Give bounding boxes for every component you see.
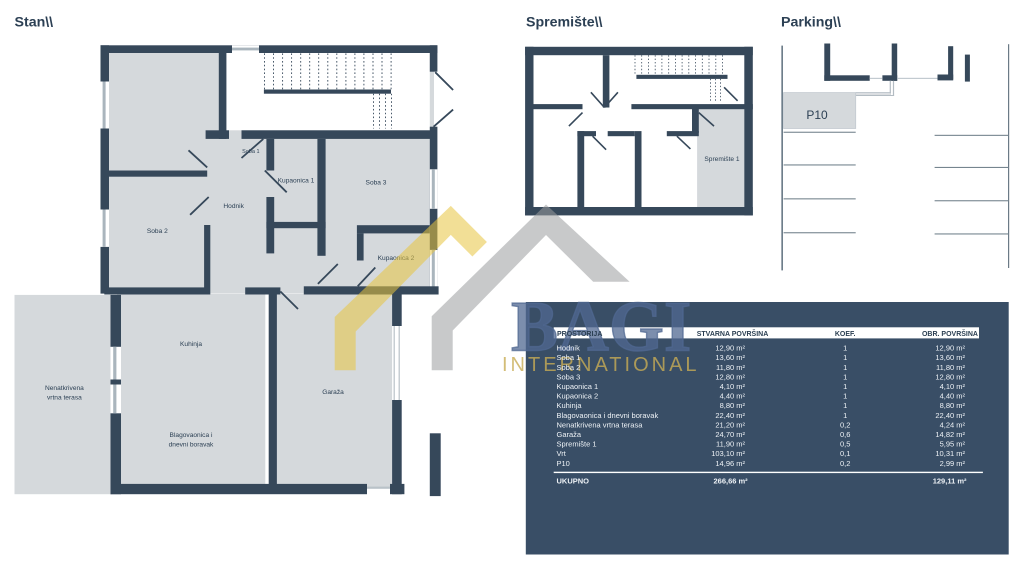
svg-text:2,99 m²: 2,99 m² bbox=[940, 459, 966, 468]
svg-text:Kupaonica 1: Kupaonica 1 bbox=[278, 178, 315, 185]
svg-text:STVARNA POVRŠINA: STVARNA POVRŠINA bbox=[697, 329, 769, 338]
svg-text:Soba 1: Soba 1 bbox=[557, 353, 581, 362]
svg-text:Nenatkrivena vrtna terasa: Nenatkrivena vrtna terasa bbox=[557, 420, 644, 429]
svg-text:P10: P10 bbox=[806, 108, 828, 122]
svg-text:Soba 3: Soba 3 bbox=[366, 179, 387, 186]
svg-text:Spremište 1: Spremište 1 bbox=[557, 440, 597, 449]
svg-text:22,40 m²: 22,40 m² bbox=[715, 411, 745, 420]
svg-text:0,1: 0,1 bbox=[840, 449, 850, 458]
svg-text:UKUPNO: UKUPNO bbox=[557, 477, 590, 486]
svg-text:11,80 m²: 11,80 m² bbox=[716, 363, 746, 372]
svg-text:12,90 m²: 12,90 m² bbox=[715, 344, 745, 353]
svg-text:12,80 m²: 12,80 m² bbox=[935, 372, 965, 381]
svg-text:INTERNATIONAL: INTERNATIONAL bbox=[502, 354, 700, 376]
svg-text:Soba 2: Soba 2 bbox=[147, 228, 168, 235]
svg-text:Nenatkrivena: Nenatkrivena bbox=[45, 385, 84, 392]
svg-text:8,80 m²: 8,80 m² bbox=[720, 401, 746, 410]
svg-text:0,2: 0,2 bbox=[840, 459, 850, 468]
svg-text:Blagovaonica i dnevni boravak: Blagovaonica i dnevni boravak bbox=[557, 411, 659, 420]
svg-text:1: 1 bbox=[843, 363, 847, 372]
svg-text:Kuhinja: Kuhinja bbox=[180, 341, 202, 348]
svg-text:Soba 3: Soba 3 bbox=[557, 372, 581, 381]
svg-text:4,10 m²: 4,10 m² bbox=[720, 382, 746, 391]
svg-text:13,60 m²: 13,60 m² bbox=[935, 353, 965, 362]
svg-text:1: 1 bbox=[843, 344, 847, 353]
svg-text:1: 1 bbox=[843, 392, 847, 401]
svg-text:1: 1 bbox=[843, 382, 847, 391]
svg-text:Vrt: Vrt bbox=[557, 449, 567, 458]
svg-text:266,66 m²: 266,66 m² bbox=[713, 477, 748, 486]
svg-text:P10: P10 bbox=[557, 459, 570, 468]
svg-text:Hodnik: Hodnik bbox=[223, 203, 244, 210]
svg-text:14,96 m²: 14,96 m² bbox=[715, 459, 745, 468]
svg-text:Spremište 1: Spremište 1 bbox=[704, 156, 740, 163]
svg-text:0,2: 0,2 bbox=[840, 420, 850, 429]
svg-text:Stan\\: Stan\\ bbox=[15, 15, 54, 31]
svg-text:Garaža: Garaža bbox=[557, 430, 582, 439]
svg-text:12,90 m²: 12,90 m² bbox=[935, 344, 965, 353]
svg-text:22,40 m²: 22,40 m² bbox=[935, 411, 965, 420]
svg-text:Garaža: Garaža bbox=[322, 389, 344, 396]
svg-text:Kuhinja: Kuhinja bbox=[557, 401, 583, 410]
svg-text:Hodnik: Hodnik bbox=[557, 344, 581, 353]
svg-text:11,90 m²: 11,90 m² bbox=[716, 440, 746, 449]
svg-text:21,20 m²: 21,20 m² bbox=[715, 420, 745, 429]
svg-text:PROSTORIJA: PROSTORIJA bbox=[557, 331, 602, 338]
svg-text:14,82 m²: 14,82 m² bbox=[935, 430, 965, 439]
svg-text:Blagovaonica i: Blagovaonica i bbox=[170, 432, 213, 439]
svg-text:4,24 m²: 4,24 m² bbox=[940, 420, 966, 429]
svg-text:8,80 m²: 8,80 m² bbox=[940, 401, 966, 410]
svg-text:Kupaonica 2: Kupaonica 2 bbox=[557, 392, 599, 401]
svg-text:4,10 m²: 4,10 m² bbox=[940, 382, 966, 391]
svg-text:Soba 2: Soba 2 bbox=[557, 363, 581, 372]
svg-text:11,80 m²: 11,80 m² bbox=[936, 363, 966, 372]
svg-text:1: 1 bbox=[843, 372, 847, 381]
svg-text:5,95 m²: 5,95 m² bbox=[940, 440, 966, 449]
svg-text:0,6: 0,6 bbox=[840, 430, 850, 439]
svg-text:10,31 m²: 10,31 m² bbox=[935, 449, 965, 458]
svg-text:1: 1 bbox=[843, 411, 847, 420]
svg-text:Parking\\: Parking\\ bbox=[781, 15, 841, 31]
svg-text:24,70 m²: 24,70 m² bbox=[715, 430, 745, 439]
svg-text:Spremište\\: Spremište\\ bbox=[526, 15, 603, 31]
svg-text:dnevni boravak: dnevni boravak bbox=[169, 442, 214, 449]
svg-text:129,11 m²: 129,11 m² bbox=[933, 477, 967, 486]
svg-text:Soba 1: Soba 1 bbox=[242, 149, 259, 155]
svg-text:4,40 m²: 4,40 m² bbox=[720, 392, 746, 401]
svg-text:0,5: 0,5 bbox=[840, 440, 850, 449]
svg-text:1: 1 bbox=[843, 353, 847, 362]
svg-text:1: 1 bbox=[843, 401, 847, 410]
svg-text:103,10 m²: 103,10 m² bbox=[711, 449, 745, 458]
svg-text:vrtna terasa: vrtna terasa bbox=[47, 395, 82, 402]
svg-text:4,40 m²: 4,40 m² bbox=[940, 392, 966, 401]
svg-text:12,80 m²: 12,80 m² bbox=[715, 372, 745, 381]
svg-text:13,60 m²: 13,60 m² bbox=[715, 353, 745, 362]
svg-text:KOEF.: KOEF. bbox=[835, 331, 856, 338]
svg-text:Kupaonica 1: Kupaonica 1 bbox=[557, 382, 599, 391]
svg-text:OBR. POVRŠINA: OBR. POVRŠINA bbox=[922, 329, 978, 338]
